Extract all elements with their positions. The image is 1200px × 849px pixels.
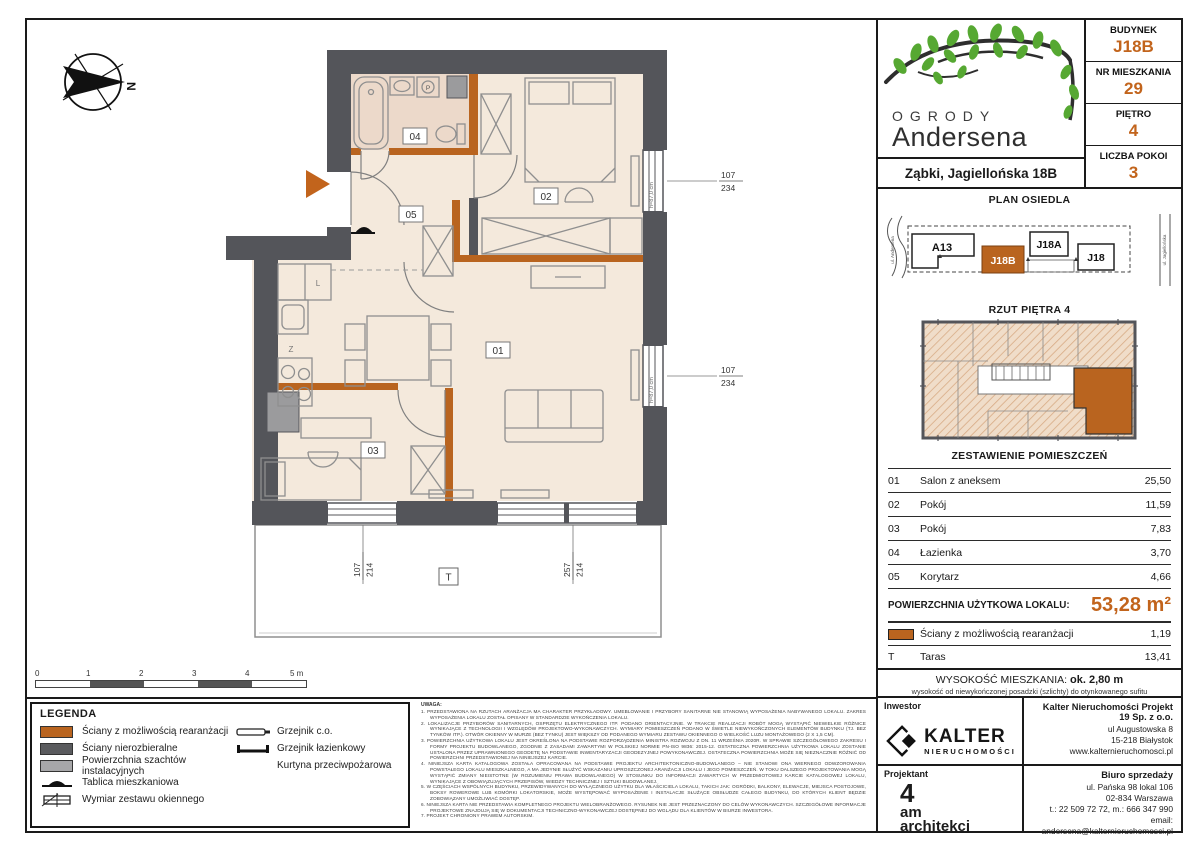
note-item: 1. PRZEDSTAWIONA NA RZUTACH ARANŻACJA MA… — [421, 709, 866, 721]
table-row: 01Salon z aneksem25,50 — [888, 469, 1171, 493]
svg-text:234: 234 — [721, 378, 735, 388]
svg-text:214: 214 — [575, 563, 585, 577]
washer-label: P — [426, 85, 430, 92]
terrace: T — [255, 525, 661, 637]
svg-text:234: 234 — [721, 183, 735, 193]
note-item: 5. W CZĘŚCIACH WSPÓLNYCH BUDYNKU, PRZEWI… — [421, 784, 866, 801]
compass-north-label: N — [124, 82, 138, 91]
logo-text-andersena: Andersena — [892, 124, 1027, 151]
svg-text:214: 214 — [365, 563, 375, 577]
designer-logo: 4 am architekci — [900, 781, 1016, 834]
terrace-label: T — [445, 573, 451, 584]
building-j18-label: J18 — [1087, 252, 1105, 264]
legend-item: Kurtyna przeciwpożarowa — [235, 757, 395, 774]
height-note: wysokość od niewykończonej posadzki (szl… — [878, 687, 1181, 696]
height-value: ok. 2,80 m — [1070, 674, 1123, 686]
total-area-value: 53,28 m² — [1091, 594, 1171, 617]
building-j18a-label: J18A — [1036, 239, 1062, 251]
floor-thumbnail-section: RZUT PIĘTRA 4 — [878, 299, 1181, 445]
orange-wall-swatch-icon — [888, 629, 914, 640]
legend-item: Powierzchnia szachtów instalacyjnych — [40, 757, 235, 774]
room-label-05: 05 — [405, 210, 417, 221]
kalter-sub: NIERUCHOMOŚCI — [924, 748, 1016, 756]
note-item: 7. PROJEKT CHRONIONY PRAWEM AUTORSKIM. — [421, 813, 866, 819]
table-row: 03Pokój7,83 — [888, 517, 1171, 541]
svg-text:h=87,0 cm: h=87,0 cm — [649, 377, 655, 403]
floor-thumbnail-map — [878, 316, 1179, 444]
sales-office-address: ul. Pańska 98 lokal 106 02-834 Warszawa … — [1032, 782, 1173, 837]
sales-office-label: Biuro sprzedaży — [1032, 770, 1173, 780]
logo-text-ogrody: OGRODY — [892, 109, 1027, 123]
apartment-board-icon — [40, 776, 82, 790]
scale-bar: 0 1 2 3 4 5 m — [35, 669, 307, 691]
street-right-label: ul. Jagiellońska — [1162, 234, 1167, 265]
legend-item: Grzejnik c.o. — [235, 723, 395, 740]
main-column: T — [27, 20, 878, 831]
rooms-table-section: ZESTAWIENIE POMIESZCZEŃ 01Salon z anekse… — [878, 445, 1181, 668]
company-name: Kalter Nieruchomości Projekt 19 Sp. z o.… — [1032, 702, 1173, 722]
notes-title: UWAGA: — [421, 702, 866, 708]
info-apartment-number: NR MIESZKANIA 29 — [1086, 62, 1181, 104]
project-address: Ząbki, Jagiellońska 18B — [878, 157, 1084, 187]
balcony-window-bottom — [494, 503, 640, 523]
legend-item: Ściany z możliwością rearanżacji — [40, 723, 235, 740]
note-item: 3. POWIERZCHNIA UŻYTKOWA LOKALU JEST OKR… — [421, 738, 866, 761]
floor-thumbnail-title: RZUT PIĘTRA 4 — [878, 299, 1181, 316]
svg-text:107: 107 — [721, 170, 735, 180]
table-row: 02Pokój11,59 — [888, 493, 1171, 517]
legend-item: Wymiar zestawu okiennego — [40, 791, 235, 808]
window-bottom-left — [324, 503, 400, 523]
brand-row: OGRODY Andersena Ząbki, Jagiellońska 18B… — [878, 20, 1181, 187]
company-address: ul Augustowska 8 15-218 Białystok www.ka… — [1032, 724, 1173, 757]
kalter-logo: KALTER NIERUCHOMOŚCI — [886, 717, 1016, 765]
dark-wall-swatch-icon — [40, 743, 82, 755]
note-item: 4. NINIEJSZA KARTA KATALOGOWA ZOSTAŁA OP… — [421, 761, 866, 784]
room-label-03: 03 — [367, 446, 379, 457]
site-plan-map: ul. Andersena ul. Jagiellońska A13 J18B … — [878, 206, 1179, 294]
info-floor: PIĘTRO 4 — [1086, 104, 1181, 146]
note-item: 6. NINIEJSZA KARTA NIE PRZEDSTAWIA KOMPL… — [421, 802, 866, 814]
floor-plan-drawing: T — [27, 20, 878, 697]
catalog-card-page: T — [0, 0, 1200, 849]
window-dimension-icon — [40, 792, 82, 808]
bathroom-radiator-icon — [235, 743, 277, 755]
notes: UWAGA: 1. PRZEDSTAWIONA NA RZUTACH ARANŻ… — [413, 699, 876, 831]
building-a13-label: A13 — [932, 242, 952, 254]
site-plan-title: PLAN OSIEDLA — [878, 189, 1181, 206]
terrace-row: T Taras 13,41 — [888, 646, 1171, 668]
entrance-arrow-icon — [306, 170, 330, 198]
floor-plan-area: T — [27, 20, 876, 697]
sidebar: OGRODY Andersena Ząbki, Jagiellońska 18B… — [878, 20, 1181, 831]
legend: LEGENDA Ściany z możliwością rearanżacji… — [30, 702, 410, 828]
kalter-diamond-icon — [886, 717, 918, 765]
investor-label: Inwestor — [884, 701, 1016, 711]
table-row: 05Korytarz4,66 — [888, 565, 1171, 589]
investor-row: Inwestor KALTER NIERUCHOMOŚCI Kalter Nie — [878, 696, 1181, 764]
height-label: WYSOKOŚĆ MIESZKANIA: — [936, 674, 1067, 686]
room-label-01: 01 — [492, 346, 504, 357]
site-plan-section: PLAN OSIEDLA ul. Andersena ul. Jagielloń… — [878, 187, 1181, 299]
orange-wall-swatch-icon — [40, 726, 82, 738]
height-section: WYSOKOŚĆ MIESZKANIA: ok. 2,80 m wysokość… — [878, 668, 1181, 696]
kalter-name: KALTER — [924, 727, 1016, 746]
svg-text:107: 107 — [721, 365, 735, 375]
compass-icon: N — [63, 54, 138, 110]
street-left-label: ul. Andersena — [890, 236, 895, 264]
room-label-04: 04 — [409, 132, 421, 143]
legend-item: Tablica mieszkaniowa — [40, 774, 235, 791]
fridge-label: L — [316, 279, 321, 288]
designer-row: Projektant 4 am architekci Biuro sprzeda… — [878, 764, 1181, 832]
apartment-info-panel: BUDYNEK J18B NR MIESZKANIA 29 PIĘTRO 4 L… — [1086, 20, 1181, 187]
legend-title: LEGENDA — [40, 708, 400, 720]
table-row: 04Łazienka3,70 — [888, 541, 1171, 565]
info-building: BUDYNEK J18B — [1086, 20, 1181, 62]
svg-text:107: 107 — [352, 563, 362, 577]
room-label-02: 02 — [540, 192, 552, 203]
shaft-swatch-icon — [40, 760, 82, 772]
ogrody-andersena-logo: OGRODY Andersena — [878, 20, 1084, 157]
radiator-co-icon — [235, 726, 277, 738]
note-item: 2. LOKALIZACJE PRZYBORÓW SANITARNYCH, OS… — [421, 721, 866, 738]
rooms-table-title: ZESTAWIENIE POMIESZCZEŃ — [888, 445, 1171, 462]
bottom-strip: LEGENDA Ściany z możliwością rearanżacji… — [27, 697, 876, 831]
building-j18b-label: J18B — [990, 255, 1016, 267]
drawing-sheet: T — [25, 18, 1183, 833]
svg-text:h=87,0 cm: h=87,0 cm — [649, 182, 655, 208]
info-room-count: LICZBA POKOI 3 — [1086, 146, 1181, 187]
total-area-row: POWIERZCHNIA UŻYTKOWA LOKALU: 53,28 m² — [888, 589, 1171, 623]
svg-text:257: 257 — [562, 563, 572, 577]
rearrangeable-walls-row: Ściany z możliwością rearanżacji 1,19 — [888, 623, 1171, 646]
dishwasher-label: Z — [289, 345, 294, 354]
legend-item: Grzejnik łazienkowy — [235, 740, 395, 757]
